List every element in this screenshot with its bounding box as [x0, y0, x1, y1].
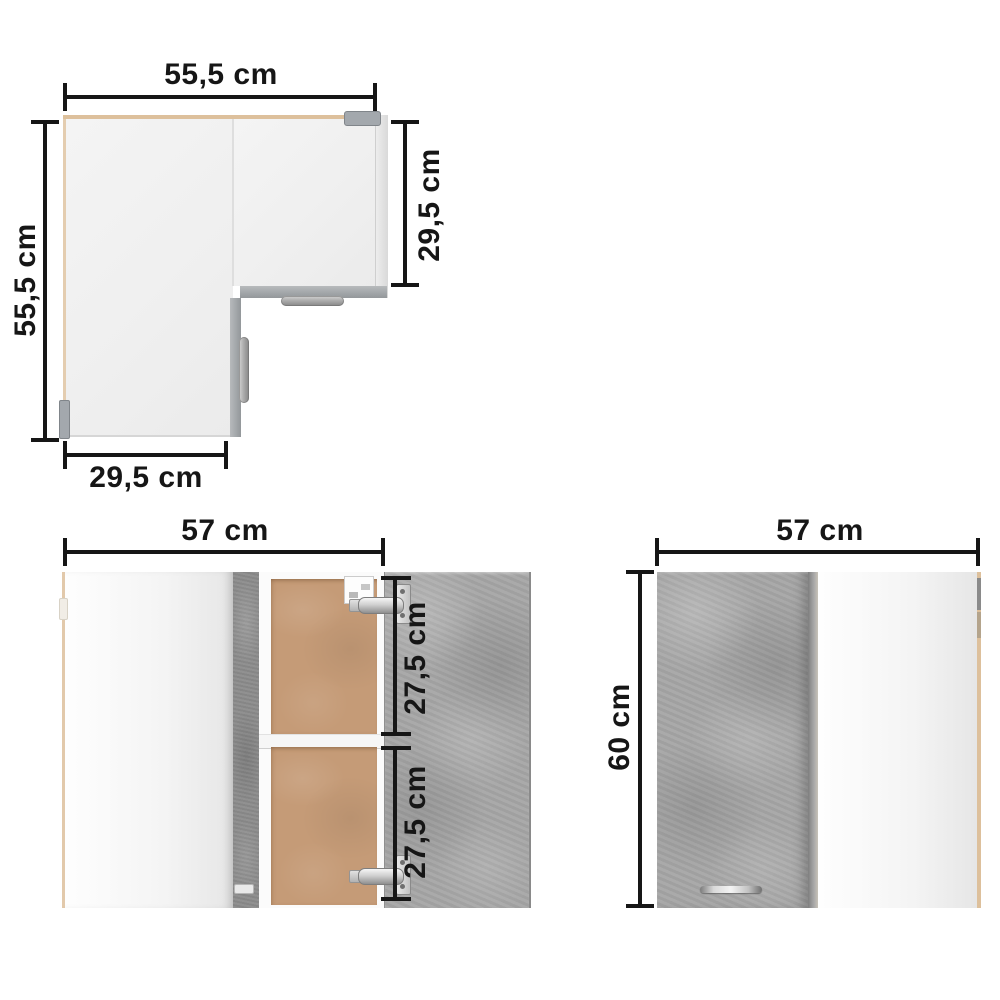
dim-tick: [655, 538, 659, 566]
dim-tick: [626, 904, 654, 908]
dimension-diagram: 55,5 cm 55,5 cm 29,5 cm 29,5 cm: [0, 0, 1000, 1000]
closed-view-right-hinge-mark: [977, 578, 981, 610]
dim-line: [638, 572, 642, 908]
closed-height-label: 60 cm: [602, 607, 638, 847]
closed-view-right-hinge-mark: [977, 612, 981, 638]
dim-tick: [626, 570, 654, 574]
closed-view-door-panel: [657, 572, 808, 908]
dim-line: [657, 550, 980, 554]
closed-view-door-handle: [700, 886, 762, 893]
front-closed-view: 57 cm 60 cm: [0, 0, 1000, 1000]
closed-view-white-side-panel: [818, 572, 977, 908]
dim-tick: [976, 538, 980, 566]
closed-width-label: 57 cm: [680, 514, 960, 548]
closed-view-corner-joint: [808, 572, 818, 908]
